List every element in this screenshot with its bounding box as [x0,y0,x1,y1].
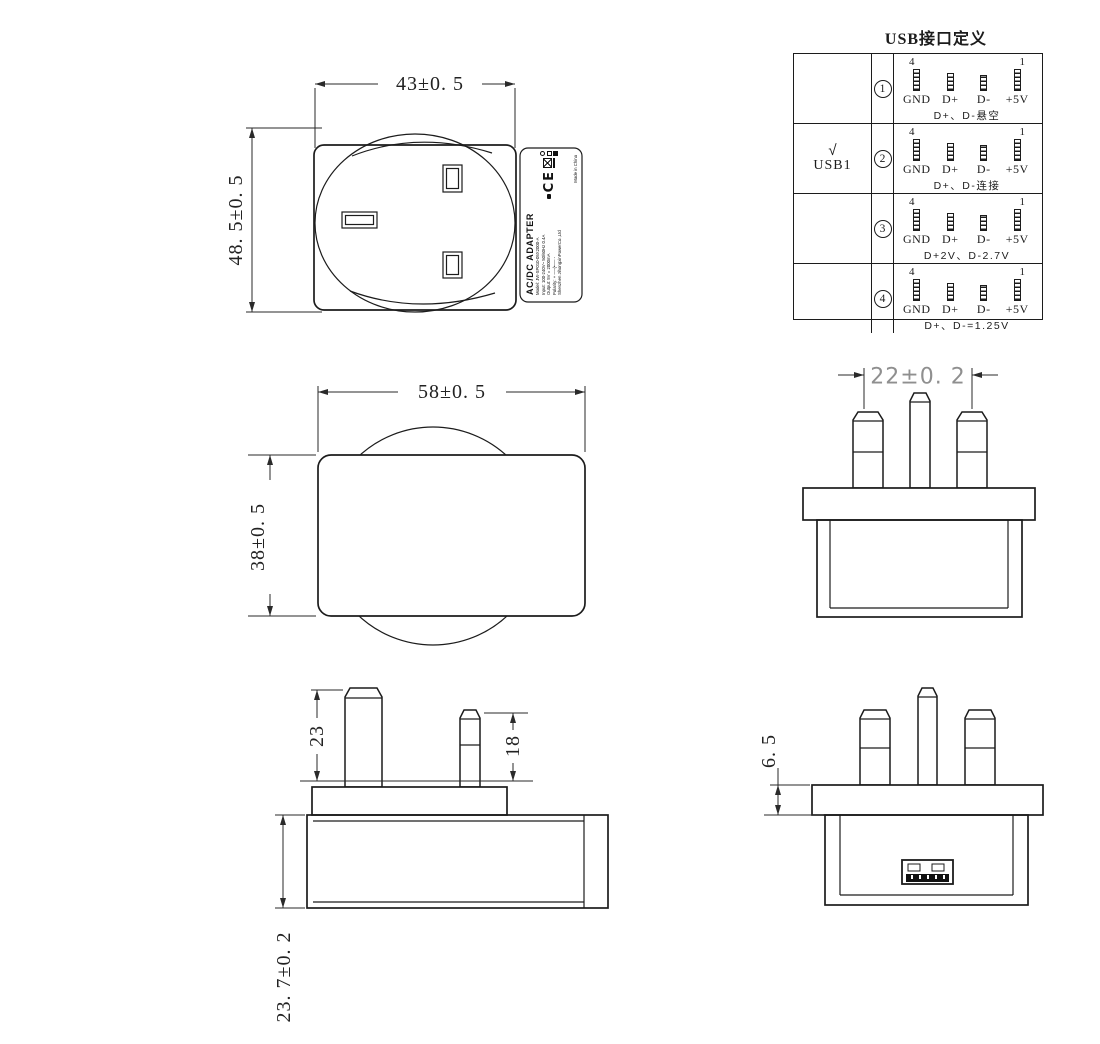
row-number-badge: 4 [874,290,892,308]
pin-config-note: D+、D-悬空 [934,108,1001,123]
usb-pin-icon [947,213,954,231]
pin-config-note: D+、D-=1.25V [924,318,1009,333]
front-view [803,393,1035,617]
usb-pin-icon [1014,139,1021,161]
usb-pin-icon [980,215,987,231]
usb-port-icon [902,860,953,884]
usb-row2-number-cell: 2 [872,124,894,194]
pin-label: D- [977,162,991,177]
usb-row3-number-cell: 3 [872,194,894,264]
cert-solid-icon [553,151,558,156]
usb-table-title: USB接口定义 [824,25,1048,49]
pin-config-note: D+2V、D-2.7V [924,248,1010,263]
dim-pin-pitch-text: 22±0. 2 [870,365,965,390]
cert-circle-icon [540,151,545,156]
pin-label: GND [903,162,931,177]
pin-label: +5V [1006,92,1029,107]
dim-side-width-text: 58±0. 5 [418,381,486,403]
pin-label: +5V [1006,302,1029,317]
cert-mark-icons [540,151,558,156]
pin-label: D+ [942,162,958,177]
dim-front-height-text: 48. 5±0. 5 [225,175,247,266]
pin-number: 1 [1020,196,1026,209]
pin-number: 1 [1020,126,1026,139]
technical-drawing-sheet: 43±0. 5 48. 5±0. 5 58±0. 5 [0,0,1100,1044]
pin-label: D+ [942,92,958,107]
usb-row2-device-cell: √ USB1 [794,124,872,194]
dim-body-depth: 23. 7±0. 2 [273,815,305,1022]
pin-label: GND [903,92,931,107]
dim-front-width-text: 43±0. 5 [396,73,464,95]
usb-row2-pinout-cell: 4GND 0D+ 0D- 1+5V D+、D-连接 [894,124,1042,194]
ce-mark: CE [542,170,557,192]
pin-label: D- [977,232,991,247]
row-number-badge: 2 [874,150,892,168]
dim-side-height-text: 38±0. 5 [247,503,269,571]
usb-pin-icon [980,145,987,161]
top-view [318,427,585,645]
pin-number: 1 [1020,266,1026,279]
usb-pin-icon [913,279,920,301]
usb-pin-icon [913,139,920,161]
weee-icon [543,158,556,168]
pinout-row: 4GND 0D+ 0D- 1+5V [900,56,1034,107]
pin-label: GND [903,302,931,317]
label-logo-bar [547,194,551,199]
usb-row4-number-cell: 4 [872,264,894,333]
row2-device: USB1 [813,158,851,174]
dim-body-depth-text: 23. 7±0. 2 [273,932,295,1023]
pin-number: 4 [909,196,915,209]
pin-config-note: D+、D-连接 [934,178,1001,193]
row-number-badge: 1 [874,80,892,98]
pin-label: +5V [1006,232,1029,247]
dim-earth-pin: 23 [300,690,533,781]
pin-number: 4 [909,126,915,139]
pin-label: D- [977,92,991,107]
adapter-label: AC/DC ADAPTER Model: JW-SP010-05X2000-A … [523,151,579,299]
usb-pin-icon [1014,209,1021,231]
usb-pin-icon [947,143,954,161]
dim-front-width: 43±0. 5 [315,73,515,148]
usb-pin-icon [913,209,920,231]
pin-label: +5V [1006,162,1029,177]
pinout-row: 4GND 0D+ 0D- 1+5V [900,266,1034,317]
usb-row4-pinout-cell: 4GND 0D+ 0D- 1+5V D+、D-=1.25V [894,264,1042,333]
usb-row1-pinout-cell: 4GND 0D+ 0D- 1+5V D+、D-悬空 [894,54,1042,124]
pin-number: 4 [909,56,915,69]
row2-check: √ [828,143,836,158]
usb-pin-icon [980,285,987,301]
usb-row4-device-cell [794,264,872,333]
usb-row3-device-cell [794,194,872,264]
usb-pin-icon [947,283,954,301]
pin-label: D+ [942,232,958,247]
side-view [307,688,608,908]
made-in-china-text: Made in China [573,151,579,299]
pin-label: GND [903,232,931,247]
pin-label: D- [977,302,991,317]
adapter-label-title: AC/DC ADAPTER [525,199,535,295]
usb-pin-icon [913,69,920,91]
usb-row3-pinout-cell: 4GND 0D+ 0D- 1+5V D+2V、D-2.7V [894,194,1042,264]
usb-interface-table: 1 4GND 0D+ 0D- 1+5V D+、D-悬空 √ USB1 2 4GN… [793,53,1043,320]
pin-number: 4 [909,266,915,279]
dim-front-height: 48. 5±0. 5 [225,128,322,312]
usb-row1-device-cell [794,54,872,124]
dim-power-pin-text: 18 [502,735,524,757]
rear-view-usb [812,688,1043,905]
usb-pin-icon [1014,279,1021,301]
usb-pin-icon [980,75,987,91]
pin-label: D+ [942,302,958,317]
row-number-badge: 3 [874,220,892,238]
usb-pin-icon [1014,69,1021,91]
dim-side-width: 58±0. 5 [318,381,585,452]
usb-pin-icon [947,73,954,91]
label-spec-line-company: Shenzhen JihongxinPowerCo.,Ltd [557,199,563,295]
cert-box-icon [547,151,552,156]
pinout-row: 4GND 0D+ 0D- 1+5V [900,126,1034,177]
usb-row1-number-cell: 1 [872,54,894,124]
dim-power-pin: 18 [484,713,528,781]
dim-earth-pin-text: 23 [306,725,328,747]
pin-number: 1 [1020,56,1026,69]
pinout-row: 4GND 0D+ 0D- 1+5V [900,196,1034,247]
dim-flange-text: 6. 5 [758,734,780,768]
dim-side-height: 38±0. 5 [247,455,316,616]
